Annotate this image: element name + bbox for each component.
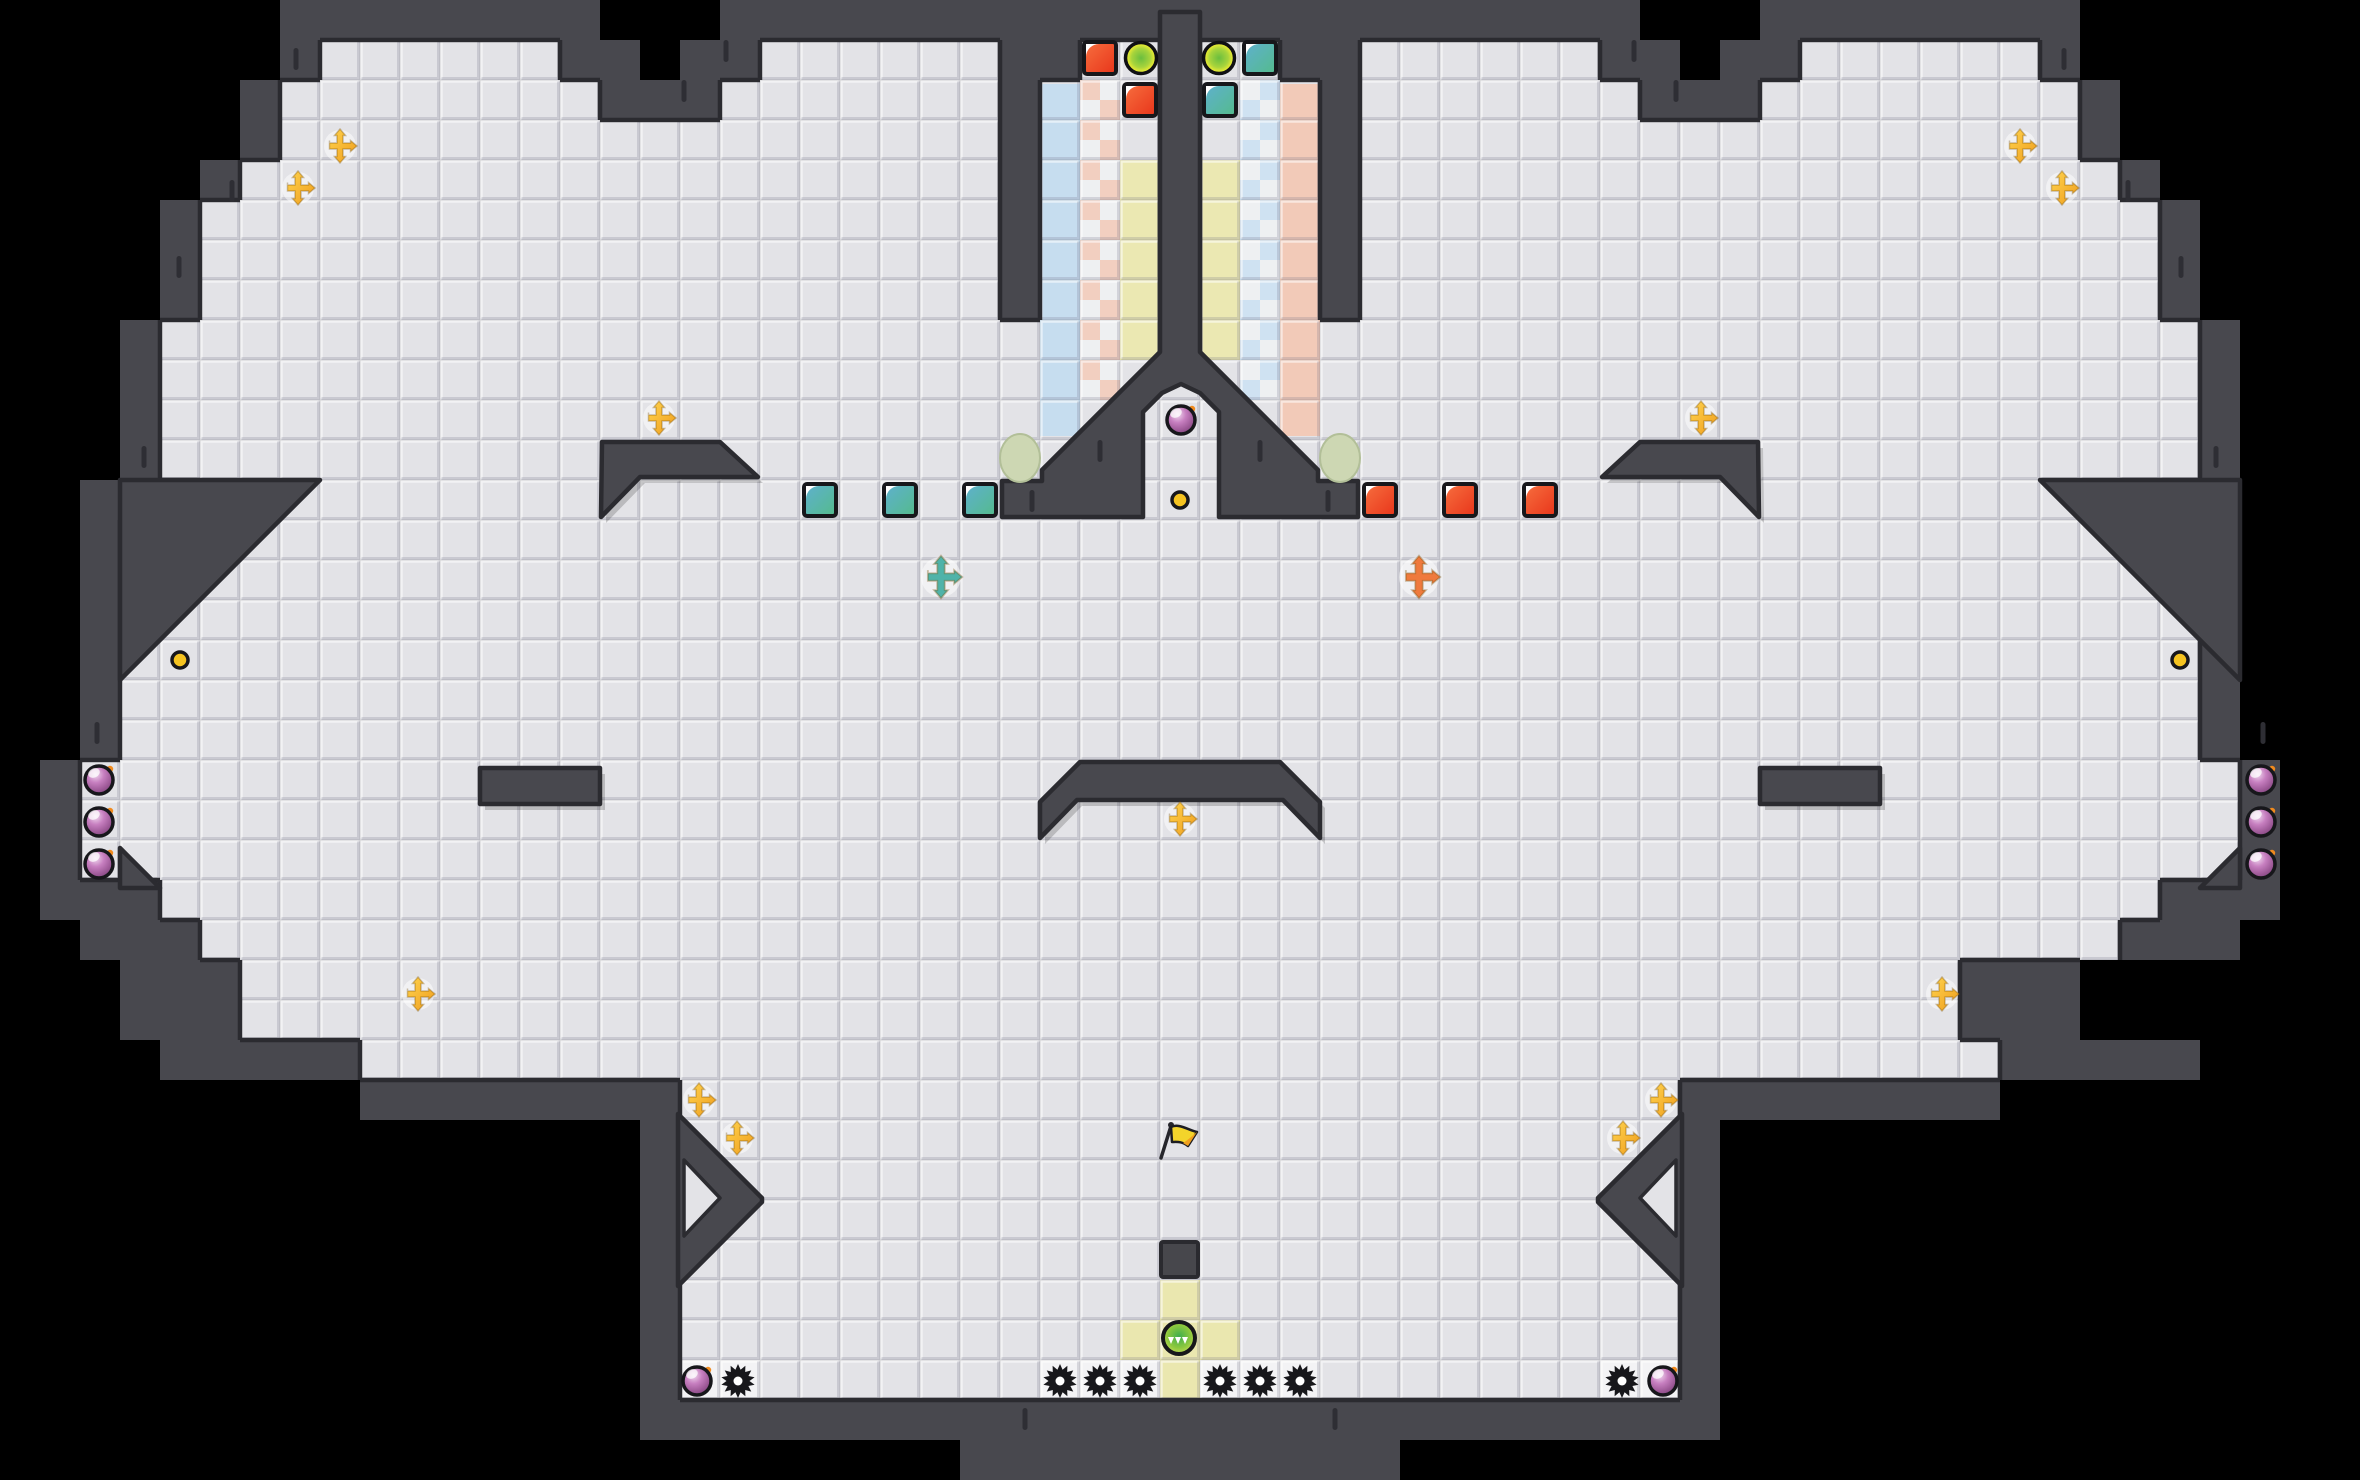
crack-mark: [294, 48, 299, 70]
door-oval-marker: [1000, 434, 1040, 482]
player-character[interactable]: [1163, 1322, 1195, 1354]
bomb-hazard: [2247, 850, 2275, 878]
red-switch-block[interactable]: [1364, 484, 1396, 516]
crack-mark: [2126, 180, 2131, 202]
crack-mark: [2179, 256, 2184, 278]
bomb-hazard: [2247, 808, 2275, 836]
exit-orb[interactable]: [1126, 43, 1157, 74]
bomb-hazard: [1649, 1367, 1677, 1395]
red-switch-block[interactable]: [1084, 42, 1116, 74]
red-switch-block[interactable]: [1444, 484, 1476, 516]
coin-collectible[interactable]: [2172, 652, 2188, 668]
bomb-hazard: [683, 1367, 711, 1395]
crack-mark: [230, 180, 235, 202]
crack-mark: [1258, 440, 1263, 462]
red-switch-block[interactable]: [1124, 84, 1156, 116]
door-oval-marker: [1320, 434, 1360, 482]
crack-mark: [142, 446, 147, 468]
crack-mark: [1333, 1408, 1338, 1430]
crack-mark: [1674, 80, 1679, 102]
crate-block[interactable]: [1161, 1242, 1198, 1277]
crack-mark: [1098, 440, 1103, 462]
bomb-hazard: [85, 766, 113, 794]
crack-mark: [95, 722, 100, 744]
bomb-hazard: [85, 850, 113, 878]
player-teeth: [1168, 1337, 1188, 1344]
crack-mark: [2062, 48, 2067, 70]
crack-mark: [724, 40, 729, 62]
left-bar-wall: [480, 768, 600, 804]
crack-mark: [1326, 490, 1331, 512]
coin-collectible[interactable]: [172, 652, 188, 668]
red-switch-block[interactable]: [1524, 484, 1556, 516]
game-viewport: [0, 0, 2360, 1480]
teal-switch-block[interactable]: [964, 484, 996, 516]
crack-mark: [1023, 1408, 1028, 1430]
crack-mark: [177, 256, 182, 278]
exit-orb[interactable]: [1204, 43, 1235, 74]
bomb-hazard: [2247, 766, 2275, 794]
crack-mark: [2214, 446, 2219, 468]
teal-switch-block[interactable]: [1204, 84, 1236, 116]
teal-switch-block[interactable]: [804, 484, 836, 516]
crack-mark: [2261, 722, 2266, 744]
teal-switch-block[interactable]: [1244, 42, 1276, 74]
coin-collectible[interactable]: [1172, 492, 1188, 508]
crack-mark: [1632, 40, 1637, 62]
right-bar-wall: [1760, 768, 1880, 804]
bomb-hazard: [1167, 406, 1195, 434]
level-canvas[interactable]: [0, 0, 2360, 1480]
crack-mark: [1030, 490, 1035, 512]
bomb-hazard: [85, 808, 113, 836]
teal-switch-block[interactable]: [884, 484, 916, 516]
crack-mark: [682, 80, 687, 102]
